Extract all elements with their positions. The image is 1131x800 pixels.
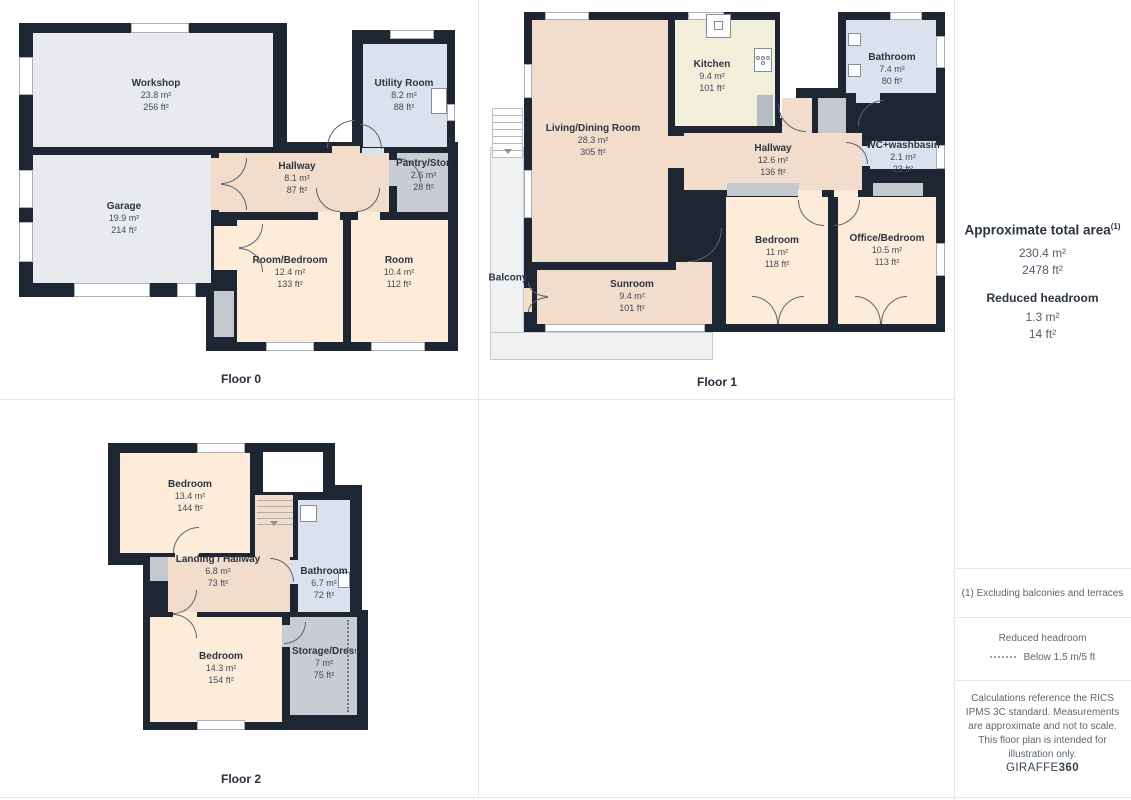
- door-arc: [327, 120, 355, 148]
- floor1-label: Floor 1: [697, 375, 737, 389]
- room-label: Bedroom 11 m² 118 ft²: [755, 234, 799, 270]
- balcony-area: [490, 147, 524, 360]
- room-label: Landing / Hallway 6.8 m² 73 ft²: [176, 553, 260, 589]
- room-label: Room/Bedroom 12.4 m² 133 ft²: [253, 254, 328, 290]
- vent-inner-square: [714, 21, 723, 30]
- window: [177, 283, 196, 297]
- room-label: Hallway 8.1 m² 87 ft²: [278, 160, 315, 196]
- floorplan-page: { "floors": [ { "label": "Floor 0", "roo…: [0, 0, 1131, 800]
- door-opening: [798, 190, 822, 197]
- closet: [818, 98, 846, 133]
- sunroom-glass-wall: [545, 324, 705, 332]
- door-opening: [676, 262, 712, 272]
- room-label: Bathroom 6.7 m² 72 ft²: [300, 565, 347, 601]
- room-label: Hallway 12.6 m² 136 ft²: [754, 142, 791, 178]
- room-label: Bathroom 7.4 m² 80 ft²: [868, 51, 915, 87]
- total-area-block: Approximate total area(1) 230.4 m² 2478 …: [954, 222, 1131, 343]
- door-opening: [211, 158, 219, 210]
- room-label: Living/Dining Room 28.3 m² 305 ft²: [546, 122, 640, 158]
- stairs-direction-arrow: [504, 149, 512, 154]
- window: [890, 12, 922, 20]
- window: [19, 170, 33, 208]
- bath-fixture: [848, 33, 861, 46]
- total-area-heading-text: Approximate total area: [964, 223, 1110, 238]
- reduced-headroom-m2: 1.3 m²: [954, 309, 1131, 326]
- sidebar-divider-1: [954, 568, 1131, 569]
- floor2-label: Floor 2: [221, 772, 261, 786]
- wardrobe: [727, 183, 799, 196]
- sidebar-divider-2: [954, 617, 1131, 618]
- closet: [150, 557, 168, 581]
- room-label: Room 10.4 m² 112 ft²: [384, 254, 415, 290]
- burner-dot: [761, 56, 765, 60]
- footnote: (1) Excluding balconies and terraces: [954, 588, 1131, 599]
- window: [197, 720, 245, 730]
- room-label: Office/Bedroom 10.5 m² 113 ft²: [849, 232, 924, 268]
- bath-fixture: [848, 64, 861, 77]
- reduced-headroom-legend-line: [990, 656, 1016, 658]
- room-label: Garage 19.9 m² 214 ft²: [107, 200, 141, 236]
- window: [19, 222, 33, 262]
- door-opening: [362, 148, 384, 155]
- room-label: Workshop 23.8 m² 256 ft²: [132, 77, 181, 113]
- giraffe360-logo: GIRAFFE360: [954, 762, 1131, 774]
- door-opening: [834, 190, 858, 197]
- grid-divider-horizontal: [0, 399, 954, 400]
- legend-block: Reduced headroom Below 1.5 m/5 ft: [954, 633, 1131, 663]
- window: [131, 23, 189, 33]
- wardrobe: [873, 183, 923, 196]
- kitchen-counter: [757, 95, 773, 126]
- legend-row: Below 1.5 m/5 ft: [954, 652, 1131, 663]
- window: [390, 30, 434, 39]
- door-opening: [358, 212, 380, 220]
- reduced-headroom-heading: Reduced headroom: [954, 291, 1131, 305]
- total-area-ft2: 2478 ft²: [954, 262, 1131, 279]
- legend-label: Below 1.5 m/5 ft: [1024, 652, 1096, 663]
- room-label: Pantry/Storage 2.6 m² 28 ft²: [396, 157, 451, 193]
- room-label: Utility Room 8.2 m² 88 ft²: [375, 77, 434, 113]
- brand-name: GIRAFFE: [1006, 762, 1059, 774]
- balcony-area: [490, 332, 713, 360]
- room-label: WC+washbasin 2.1 m² 23 ft²: [866, 139, 940, 175]
- total-area-heading: Approximate total area(1): [954, 222, 1131, 238]
- legend-heading: Reduced headroom: [954, 633, 1131, 644]
- room-label: Bedroom 13.4 m² 144 ft²: [168, 478, 212, 514]
- floor0-label: Floor 0: [221, 372, 261, 386]
- reduced-headroom-ft2: 14 ft²: [954, 326, 1131, 343]
- window: [197, 443, 245, 453]
- window: [524, 170, 532, 218]
- brand-suffix: 360: [1059, 762, 1079, 774]
- door-opening: [318, 212, 340, 220]
- window: [74, 283, 150, 297]
- shower-icon: [300, 505, 317, 522]
- window: [266, 342, 314, 351]
- room-label: Sunroom 9.4 m² 101 ft²: [610, 278, 654, 314]
- burner-dot: [756, 56, 760, 60]
- window: [371, 342, 425, 351]
- room-label: Kitchen 9.4 m² 101 ft²: [694, 58, 731, 94]
- room-label: Storage/Dressing 7 m² 75 ft²: [292, 645, 356, 681]
- stairwell-void: [263, 452, 323, 492]
- window: [545, 12, 589, 20]
- room-label: Bedroom 14.3 m² 154 ft²: [199, 650, 243, 686]
- door-opening: [660, 136, 684, 168]
- disclaimer: Calculations reference the RICS IPMS 3C …: [963, 692, 1122, 762]
- stove-burners-icon: [754, 48, 772, 72]
- burner-dot: [761, 61, 765, 65]
- exterior-step: [214, 291, 234, 337]
- window: [936, 36, 945, 68]
- window: [936, 243, 945, 276]
- page-bottom-border: [0, 797, 1131, 798]
- window: [447, 104, 455, 121]
- sidebar-divider-3: [954, 680, 1131, 681]
- footnote-marker: (1): [1111, 222, 1121, 231]
- window: [19, 57, 33, 95]
- balcony-label: Balcony: [489, 272, 528, 285]
- total-area-m2: 230.4 m²: [954, 245, 1131, 262]
- burner-dot: [766, 56, 770, 60]
- door-opening: [214, 226, 237, 270]
- stairs-direction-arrow: [270, 521, 278, 526]
- window: [524, 64, 532, 98]
